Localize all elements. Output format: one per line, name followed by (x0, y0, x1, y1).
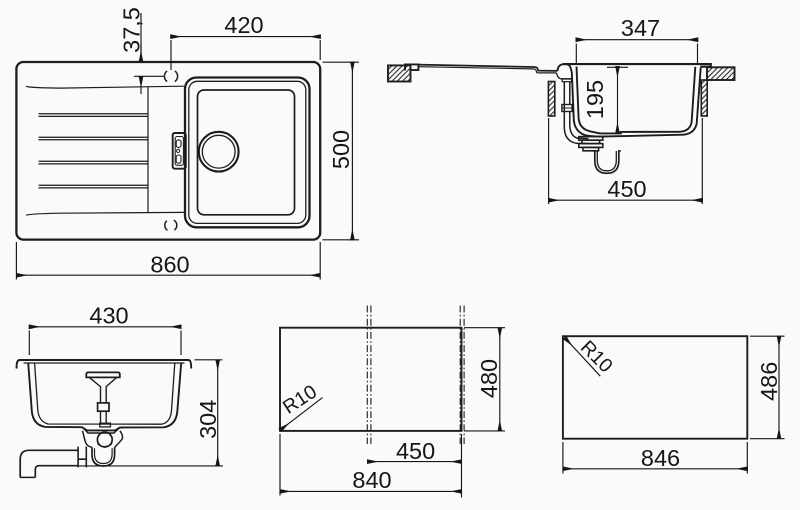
svg-text:500: 500 (328, 130, 354, 169)
svg-text:450: 450 (396, 438, 435, 464)
svg-text:480: 480 (476, 359, 502, 398)
svg-text:860: 860 (150, 251, 189, 277)
svg-text:R10: R10 (279, 381, 321, 419)
svg-text:420: 420 (224, 12, 263, 38)
svg-text:430: 430 (89, 302, 128, 328)
svg-text:450: 450 (607, 176, 646, 202)
svg-text:R10: R10 (576, 336, 617, 377)
svg-text:195: 195 (582, 80, 608, 119)
svg-text:486: 486 (756, 362, 782, 401)
svg-text:846: 846 (641, 445, 680, 471)
svg-text:840: 840 (352, 467, 391, 493)
svg-text:304: 304 (195, 400, 221, 439)
svg-text:347: 347 (621, 15, 660, 41)
svg-text:37,5: 37,5 (118, 7, 144, 53)
